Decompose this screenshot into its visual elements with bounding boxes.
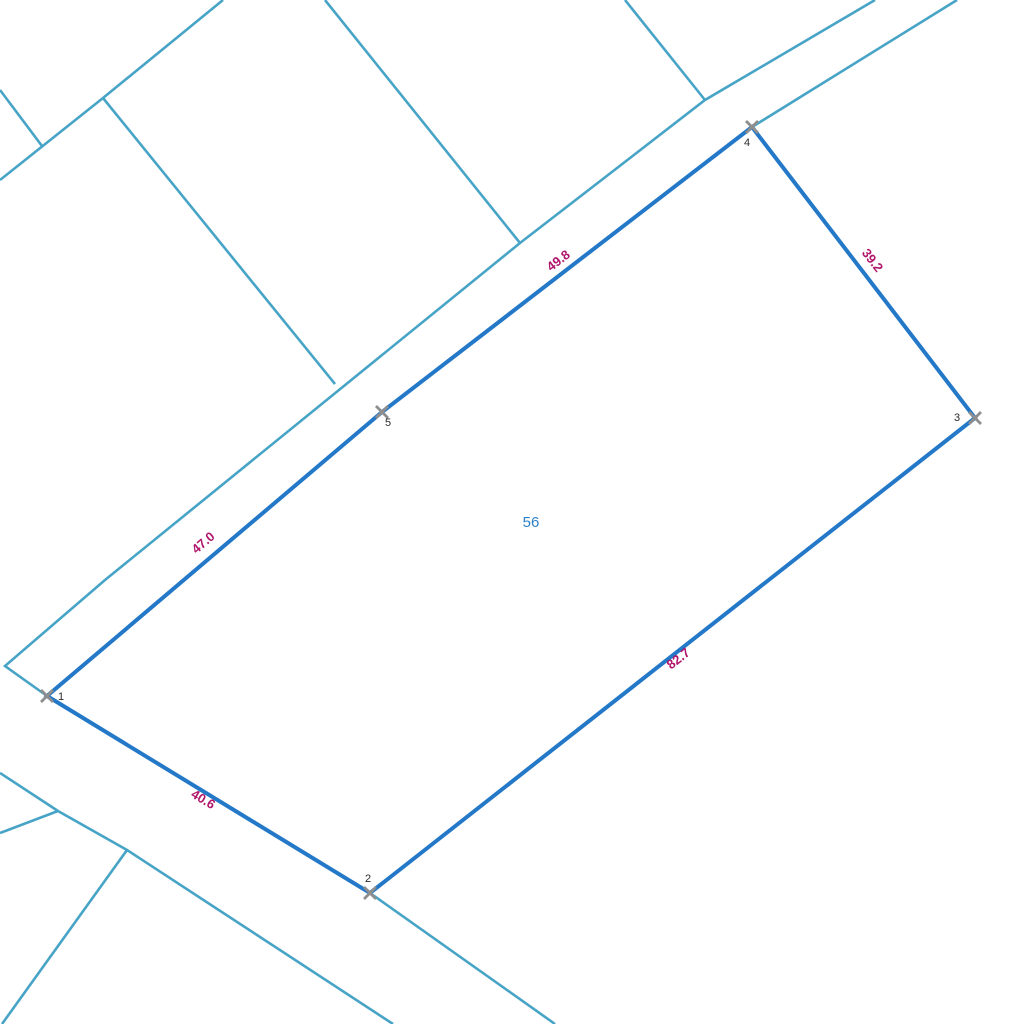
parcel-boundary[interactable]: [47, 127, 975, 893]
road-edge-line: [752, 0, 957, 127]
map-viewport[interactable]: 1234540.682.739.249.847.056: [0, 0, 1024, 1024]
vertex-marker: [364, 887, 376, 899]
vertex-number-label: 5: [385, 417, 391, 429]
boundary-line: [0, 811, 58, 833]
boundary-line: [2, 850, 127, 1024]
edge-length-label: 82.7: [664, 645, 693, 672]
boundary-line: [103, 98, 335, 384]
road-edge-line: [58, 811, 393, 1024]
map-canvas[interactable]: 1234540.682.739.249.847.056: [0, 0, 1024, 1024]
edge-length-label: 47.0: [189, 529, 218, 557]
boundary-line: [625, 0, 705, 100]
vertex-marker: [41, 690, 53, 702]
vertex-marker: [746, 121, 758, 133]
vertex-number-label: 3: [954, 412, 960, 424]
vertex-number-label: 2: [365, 873, 371, 885]
edge-length-label: 40.6: [189, 786, 218, 812]
boundary-line: [0, 90, 42, 146]
vertex-number-label: 1: [58, 691, 64, 703]
boundary-line: [325, 0, 520, 243]
parcel-number-label: 56: [523, 514, 540, 531]
road-edge-line: [5, 0, 875, 696]
road-edge-line: [370, 893, 555, 1024]
vertex-marker: [969, 412, 981, 424]
vertex-number-label: 4: [744, 137, 750, 149]
boundary-line: [0, 773, 58, 811]
boundary-line: [103, 0, 223, 98]
